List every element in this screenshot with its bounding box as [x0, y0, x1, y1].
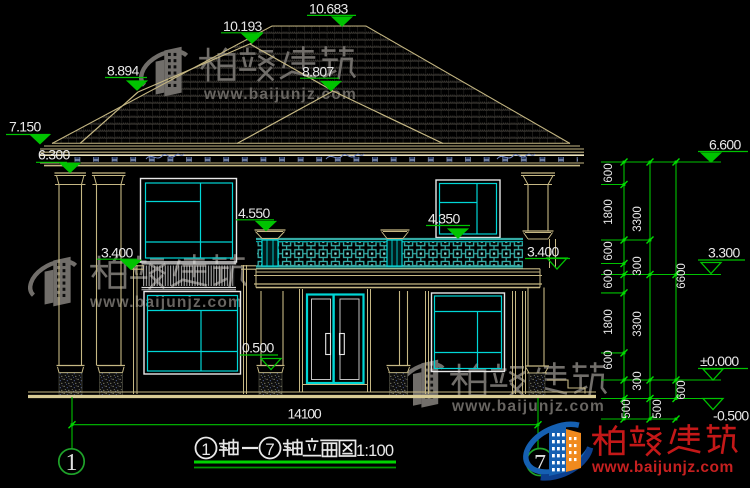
- svg-text:500: 500: [621, 399, 633, 418]
- svg-text:600: 600: [603, 163, 615, 182]
- svg-text:3.400: 3.400: [527, 244, 559, 260]
- svg-text:3.300: 3.300: [708, 245, 740, 261]
- svg-text:1: 1: [66, 450, 78, 476]
- svg-text:3300: 3300: [632, 311, 644, 337]
- svg-text:www.baijunjz.com: www.baijunjz.com: [89, 294, 243, 311]
- svg-text:±0.000: ±0.000: [700, 353, 739, 369]
- svg-text:10.193: 10.193: [223, 18, 263, 34]
- svg-text:600: 600: [603, 269, 615, 288]
- svg-text:600: 600: [676, 380, 688, 399]
- svg-text:1800: 1800: [603, 199, 615, 225]
- svg-text:1:100: 1:100: [356, 442, 394, 460]
- svg-text:1: 1: [201, 440, 210, 459]
- svg-text:8.894: 8.894: [107, 63, 139, 79]
- svg-text:www.baijunjz.com: www.baijunjz.com: [591, 459, 734, 476]
- svg-text:7: 7: [265, 440, 274, 459]
- svg-text:4.550: 4.550: [238, 205, 270, 221]
- svg-text:3.400: 3.400: [101, 245, 133, 261]
- svg-text:500: 500: [652, 399, 664, 418]
- svg-text:8.807: 8.807: [302, 64, 334, 80]
- svg-text:6600: 6600: [676, 263, 688, 289]
- svg-text:600: 600: [603, 241, 615, 260]
- svg-text:600: 600: [603, 350, 615, 369]
- svg-text:1800: 1800: [603, 309, 615, 335]
- svg-text:4.350: 4.350: [428, 211, 460, 227]
- svg-text:6.300: 6.300: [38, 147, 70, 163]
- svg-text:www.baijunjz.com: www.baijunjz.com: [451, 398, 605, 415]
- svg-text:300: 300: [632, 371, 644, 390]
- svg-text:3300: 3300: [632, 206, 644, 232]
- svg-text:10.683: 10.683: [309, 1, 349, 17]
- svg-text:300: 300: [632, 256, 644, 275]
- svg-text:14100: 14100: [288, 406, 322, 422]
- svg-text:6.600: 6.600: [709, 137, 741, 153]
- svg-text:7.150: 7.150: [9, 119, 41, 135]
- svg-text:-0.500: -0.500: [713, 408, 749, 424]
- svg-text:0.500: 0.500: [242, 340, 274, 356]
